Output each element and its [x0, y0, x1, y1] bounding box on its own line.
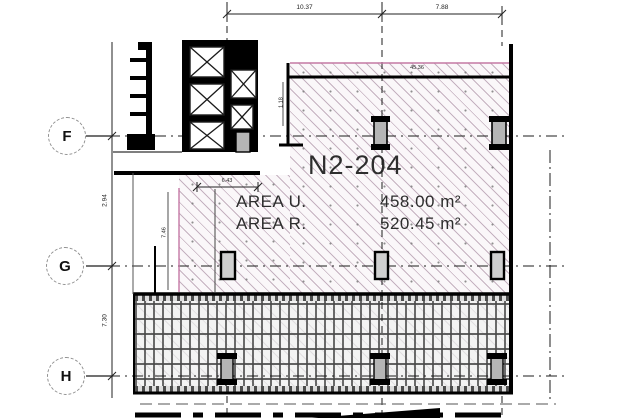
grid-bubble-h: H [47, 357, 85, 395]
elevator-core [127, 40, 258, 152]
grid-bubble-h-label: H [61, 368, 72, 385]
dimension-top-right: 7.88 [382, 3, 502, 12]
terrace-brick-area [135, 294, 512, 393]
dimension-wall-offset: 1.18 [278, 92, 287, 114]
brick-edge-top [135, 294, 512, 301]
dimension-wall-top: 45.36 [395, 64, 439, 73]
unit-number-label: N2-204 [308, 150, 403, 181]
dimension-left-gh: 7.30 [101, 306, 110, 336]
grid-bubble-f-label: F [62, 128, 71, 145]
area-u-value: 458.00 m² [380, 192, 461, 212]
area-r-label: AREA R. [236, 214, 307, 234]
section-marker [135, 404, 556, 418]
floor-plan-canvas: N2-204 AREA U. 458.00 m² AREA R. 520.45 … [0, 0, 620, 420]
shaft-x-icon [190, 47, 256, 149]
area-u-label: AREA U. [236, 192, 307, 212]
grid-bubble-f: F [48, 117, 86, 155]
grid-bubble-g-label: G [59, 258, 71, 275]
dimension-inner-height: 7.46 [161, 220, 170, 246]
dimension-top-left: 10.37 [227, 3, 382, 12]
dimension-left-fg: 2.94 [101, 186, 110, 216]
stair-wall [127, 42, 155, 150]
brick-edge-bottom [135, 386, 512, 393]
grid-bubble-g: G [46, 247, 84, 285]
section-arrow-icon [312, 408, 440, 418]
area-r-value: 520.45 m² [380, 214, 461, 234]
elevator-shafts [190, 47, 256, 149]
dimension-inner-width: 6.43 [208, 177, 246, 186]
core-duct [236, 132, 250, 152]
